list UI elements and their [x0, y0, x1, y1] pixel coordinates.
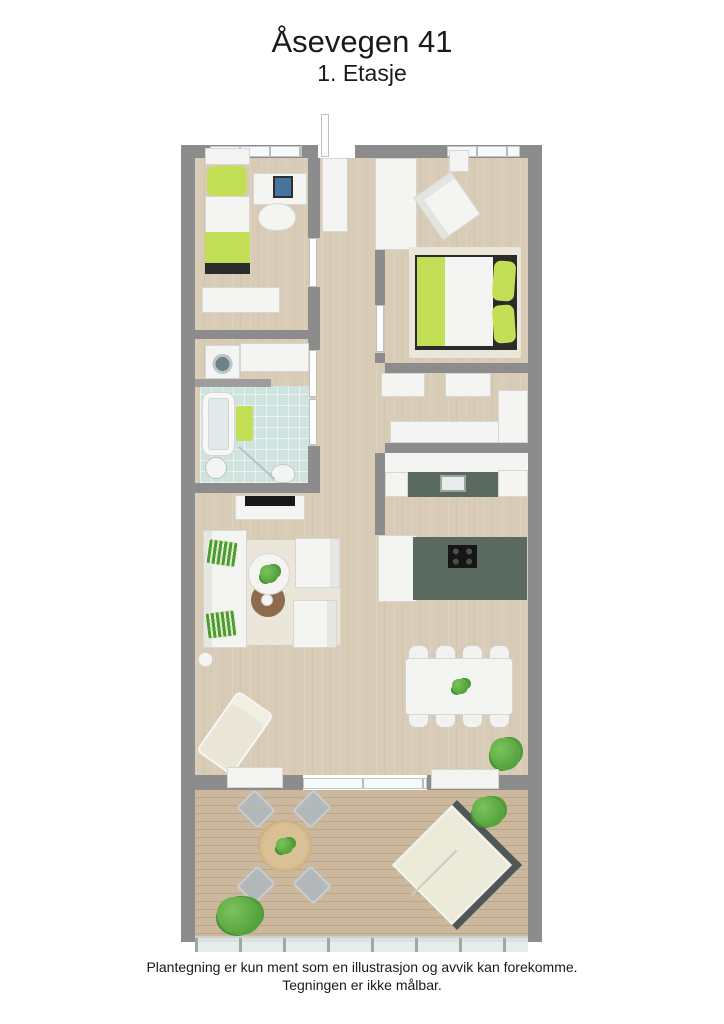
bedroom2-closet-cabinet: [375, 158, 417, 250]
coffee-table-plant: [260, 565, 278, 583]
bed2-pillow-bottom: [492, 304, 517, 343]
wall-bedroom2-left-a: [375, 250, 385, 305]
wall-left: [181, 145, 195, 942]
bedroom2-door-leaf: [376, 305, 384, 352]
floorplan-page: Åsevegen 41 1. Etasje: [0, 0, 724, 1024]
bathroom-sink: [205, 457, 227, 479]
disclaimer-line-2: Tegningen er ikke målbar.: [0, 976, 724, 994]
laundry-counter: [240, 343, 309, 372]
terrace-table-plant: [276, 838, 293, 854]
wall-bedroom1-laundry: [195, 330, 320, 339]
bath-mat: [236, 406, 253, 441]
wall-right: [528, 145, 542, 942]
sofa-pillow-bottom: [204, 609, 237, 639]
page-title: Åsevegen 41: [0, 24, 724, 60]
bed1-headboard: [205, 148, 250, 165]
terrace-sliding-door: [303, 778, 427, 789]
bed2-blanket: [417, 257, 447, 346]
laundry-door-leaf: [309, 350, 317, 397]
floor-plan: [181, 116, 542, 954]
side-table-vase: [261, 594, 273, 606]
cooktop: [448, 545, 477, 568]
wardrobe-door-b: [445, 373, 491, 397]
wall-bedroom2-bottom: [385, 363, 528, 373]
bathtub: [202, 392, 235, 456]
closet-tall-cabinet: [498, 390, 528, 443]
kitchen-sink: [440, 475, 466, 492]
disclaimer: Plantegning er kun ment som en illustras…: [0, 958, 724, 994]
office-chair: [258, 203, 296, 231]
header: Åsevegen 41 1. Etasje: [0, 24, 724, 87]
bathroom-door-leaf: [309, 399, 317, 445]
disclaimer-line-1: Plantegning er kun ment som en illustras…: [0, 958, 724, 976]
bed1-pillow: [207, 166, 247, 197]
bed2-duvet: [445, 257, 493, 346]
wall-bedroom2-left-b: [375, 353, 385, 363]
bed1-duvet: [205, 196, 250, 234]
entry-closet: [322, 158, 348, 232]
front-door-leaf: [321, 114, 329, 157]
wall-laundry-divider: [195, 379, 271, 387]
planter-box-right: [431, 769, 499, 789]
page-subtitle: 1. Etasje: [0, 60, 724, 87]
terrace-plant-right: [472, 797, 504, 827]
glass-railing: [195, 936, 528, 952]
desk-monitor: [273, 176, 293, 198]
island-cabinet: [378, 535, 417, 602]
wardrobe-door-a: [381, 373, 425, 397]
dining-table-plant: [452, 679, 468, 694]
bedroom2-vent-box: [449, 150, 469, 172]
planter-box-left: [227, 767, 283, 788]
armchair-top: [295, 538, 340, 588]
living-plant: [490, 738, 520, 770]
sofa-pillow-top: [205, 538, 238, 568]
tv: [245, 496, 295, 506]
wall-corridor-left-b: [308, 287, 320, 350]
wall-kitchen-left: [375, 453, 385, 535]
closet-sideboard: [390, 421, 511, 443]
armchair-bottom: [293, 600, 337, 648]
bedroom1-sideboard: [202, 287, 280, 313]
bed1-blanket: [205, 232, 250, 263]
toilet: [271, 464, 295, 483]
floor-lamp: [198, 652, 213, 667]
washing-machine: [205, 345, 240, 379]
wall-closet-bottom: [385, 443, 528, 453]
bedroom1-door-leaf: [309, 238, 317, 287]
wall-bathroom-bottom: [195, 483, 320, 493]
bed2-pillow-top: [492, 260, 517, 301]
wall-corridor-left-a: [308, 158, 320, 238]
kitchen-cabinet-left: [385, 472, 408, 497]
bed1-footboard: [205, 263, 250, 274]
terrace-plant-left: [217, 897, 261, 935]
kitchen-cabinet-right: [498, 470, 528, 497]
